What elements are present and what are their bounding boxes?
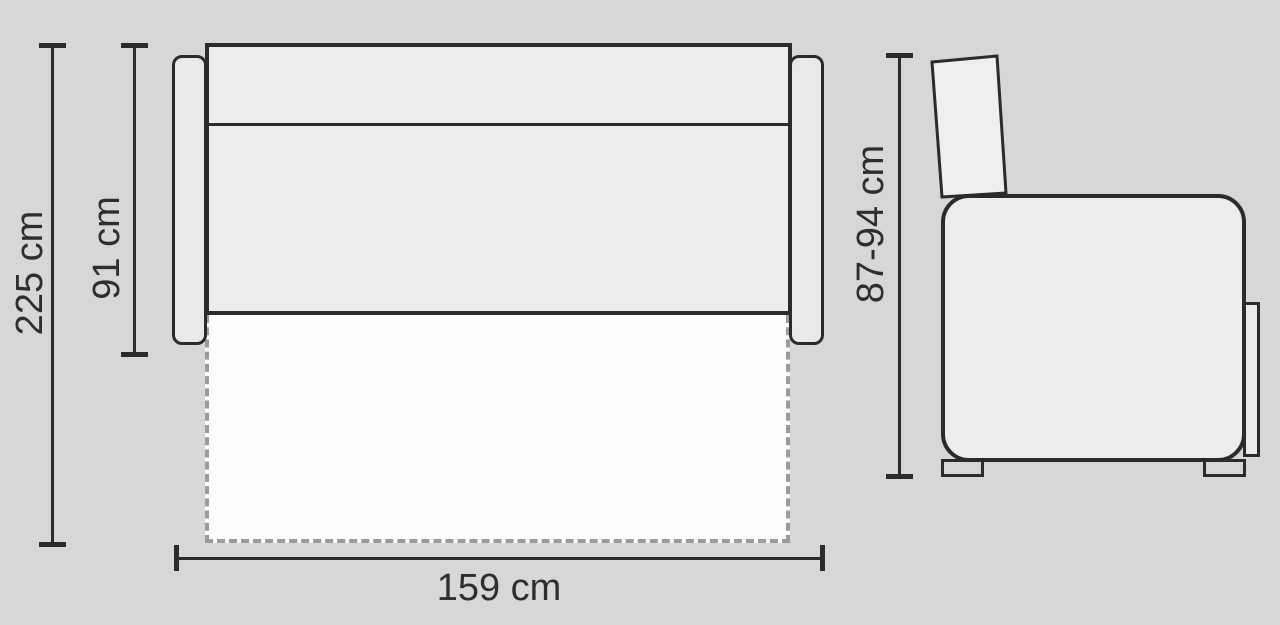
sofa-top-view-body: [205, 43, 792, 315]
dim-line-seat-depth: [133, 45, 136, 355]
armrest-right: [789, 55, 824, 345]
dim-label-height: 87-94 cm: [852, 145, 890, 303]
sofa-dimension-diagram: 225 cm 91 cm 159 cm 87-94 cm: [0, 0, 1280, 625]
dim-line-width: [177, 557, 823, 560]
pulled-out-bed-area: [205, 315, 790, 543]
dim-cap: [39, 542, 66, 547]
dim-label-width: 159 cm: [437, 569, 562, 607]
dim-line-total-depth: [51, 45, 54, 545]
side-view-backrest: [932, 56, 1006, 197]
sofa-side-view-body: [941, 194, 1246, 462]
dim-cap: [174, 545, 179, 571]
dim-label-seat-depth: 91 cm: [88, 196, 126, 299]
dim-line-height: [898, 55, 901, 477]
dim-cap: [886, 53, 913, 58]
armrest-left: [172, 55, 207, 345]
dim-label-total-depth: 225 cm: [11, 211, 49, 336]
dim-cap: [39, 43, 66, 48]
dim-cap: [121, 352, 148, 357]
dim-cap: [886, 474, 913, 479]
backrest-seat-divider: [209, 123, 788, 126]
dim-cap: [121, 43, 148, 48]
dim-cap: [820, 545, 825, 571]
